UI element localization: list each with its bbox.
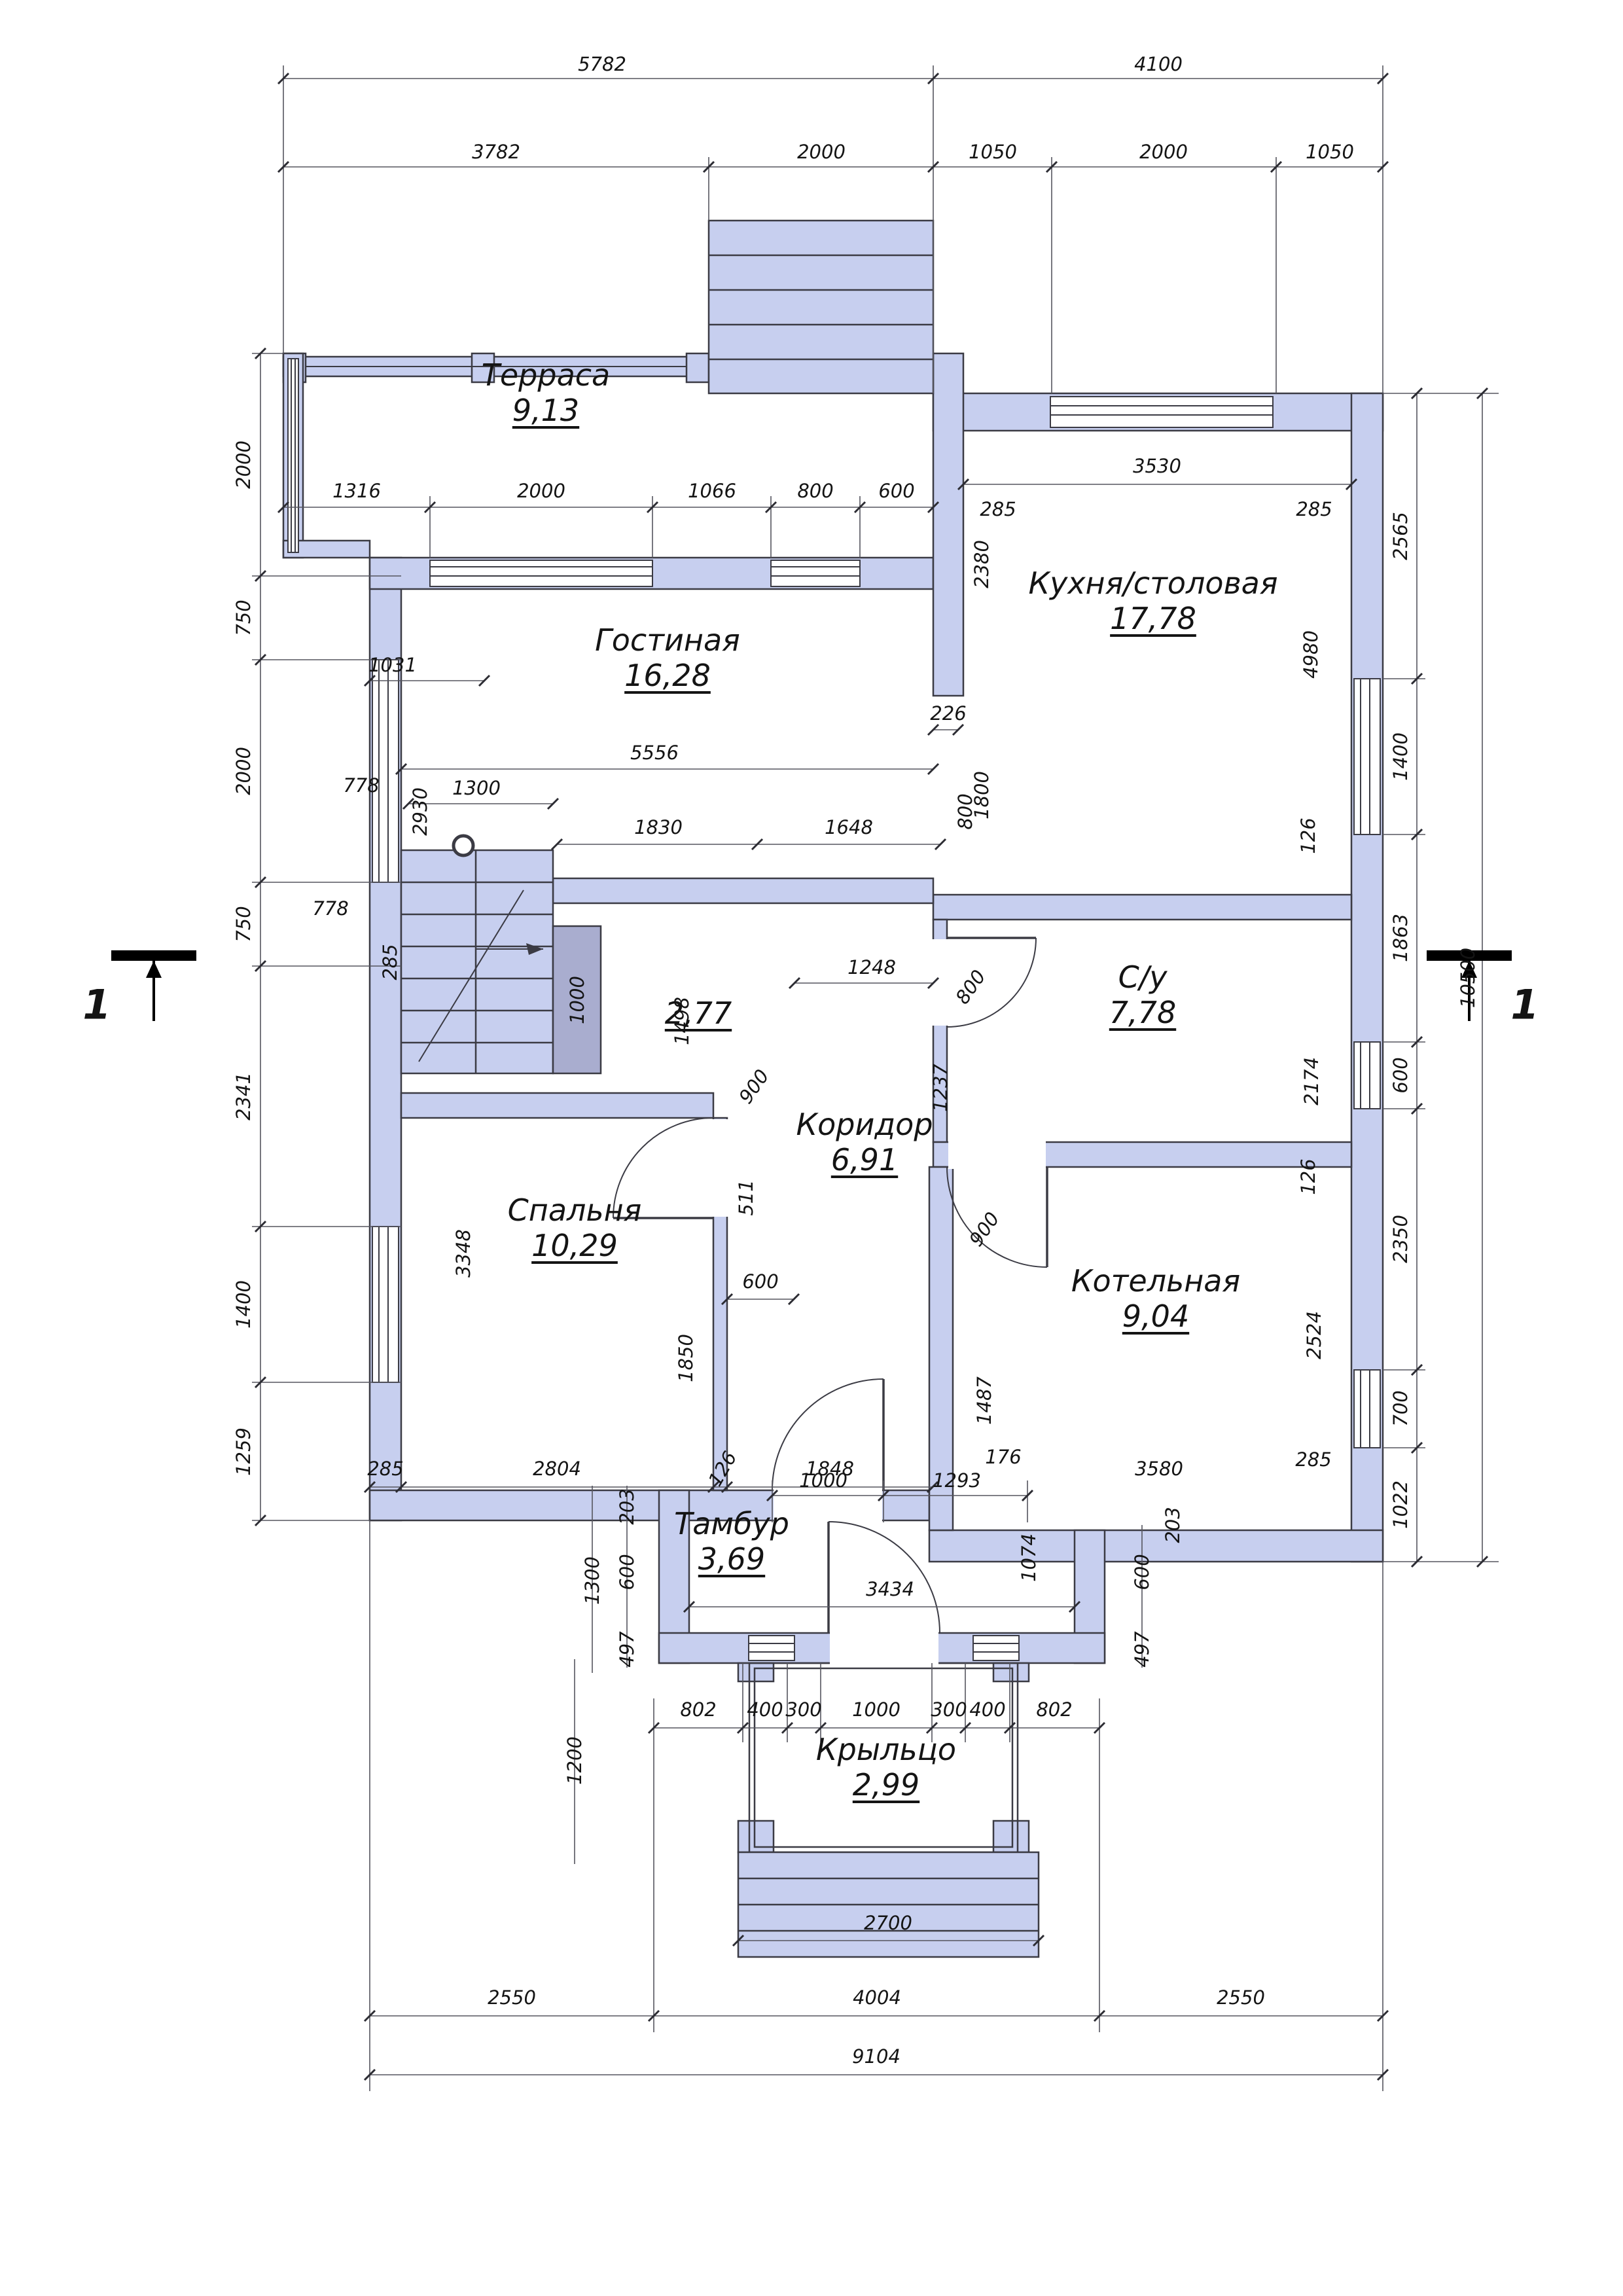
porch-post xyxy=(993,1663,1029,1681)
room-name: Крыльцо xyxy=(816,1732,956,1767)
room-area: 9,13 xyxy=(482,393,610,428)
dimension-label: 800 xyxy=(954,793,976,829)
dimension-label: 126 xyxy=(1297,817,1319,853)
dimension-label: 2174 xyxy=(1300,1057,1323,1105)
dimension-label: 285 xyxy=(980,498,1016,520)
dimension-label: 1000 xyxy=(852,1698,901,1721)
dimension-label: 778 xyxy=(312,897,348,920)
dimension-label: 1000 xyxy=(566,976,588,1024)
dimension-label: 600 xyxy=(616,1554,638,1590)
room-name: Котельная xyxy=(1071,1263,1240,1299)
room-area: 7,78 xyxy=(1109,995,1176,1030)
dimension-label: 750 xyxy=(232,600,255,636)
room-name: С/у xyxy=(1109,960,1176,995)
room-area: 3,69 xyxy=(674,1541,789,1577)
dimension-label: 497 xyxy=(1131,1631,1153,1667)
dimension-label: 300 xyxy=(785,1698,821,1721)
dimension-label: 600 xyxy=(1389,1057,1412,1093)
dimension-label: 2341 xyxy=(232,1072,255,1121)
dimension-label: 176 xyxy=(985,1446,1021,1468)
dimension-label: 5782 xyxy=(578,53,626,75)
dimension-label: 400 xyxy=(747,1698,783,1721)
dimension-label: 285 xyxy=(379,944,401,980)
dimension-label: 700 xyxy=(1389,1390,1412,1426)
dimension-label: 2550 xyxy=(488,1986,536,2009)
dimension-label: 2524 xyxy=(1303,1311,1325,1359)
dimension-label: 800 xyxy=(797,480,833,502)
dimension-label: 1293 xyxy=(933,1469,981,1492)
dimension-label: 802 xyxy=(1036,1698,1072,1721)
dimension-label: 285 xyxy=(1296,498,1332,520)
dimension-label: 511 xyxy=(735,1179,757,1215)
room-label: Котельная 9,04 xyxy=(1071,1263,1240,1334)
terrace-steps xyxy=(709,221,933,393)
dimension-label: 2350 xyxy=(1389,1215,1412,1263)
dimension-label: 3434 xyxy=(866,1578,914,1600)
room-name: Терраса xyxy=(482,357,610,393)
dimension-label: 2804 xyxy=(533,1458,581,1480)
room-label: Спальня 10,29 xyxy=(508,1193,642,1263)
dimension-label: 802 xyxy=(680,1698,716,1721)
dimension-label: 2380 xyxy=(971,540,993,588)
dimension-label: 285 xyxy=(1295,1448,1331,1471)
dimension-label: 1259 xyxy=(232,1427,255,1476)
dimension-label: 4100 xyxy=(1134,53,1183,75)
staircase xyxy=(401,836,601,1073)
dimension-label: 600 xyxy=(742,1270,778,1293)
room-label: Крыльцо 2,99 xyxy=(816,1732,956,1803)
dimension-label: 1850 xyxy=(675,1334,697,1382)
room-area: 10,29 xyxy=(508,1228,642,1263)
dimension-label: 600 xyxy=(878,480,914,502)
dimension-label: 778 xyxy=(343,774,379,797)
section-number: 1 xyxy=(82,981,111,1029)
room-area: 2,99 xyxy=(816,1767,956,1803)
room-name: Коридор xyxy=(796,1107,933,1142)
room-label: Терраса 9,13 xyxy=(482,357,610,428)
dimension-label: 226 xyxy=(930,702,966,725)
dimension-label: 1830 xyxy=(634,816,683,838)
dimension-label: 3580 xyxy=(1135,1458,1183,1480)
dimension-label: 2700 xyxy=(864,1912,912,1934)
dimension-label: 750 xyxy=(232,906,255,942)
room-name: Спальня xyxy=(508,1193,642,1228)
section-number: 1 xyxy=(1510,981,1539,1029)
dimension-label: 4980 xyxy=(1300,630,1322,679)
dimension-label: 5556 xyxy=(630,742,679,764)
room-area: 17,78 xyxy=(1028,601,1277,636)
floor-plan-page: const data = JSON.parse(document.getElem… xyxy=(0,0,1623,2296)
room-label: С/у 7,78 xyxy=(1109,960,1176,1030)
room-name: Кухня/столовая xyxy=(1028,565,1277,601)
dimension-label: 1050 xyxy=(1306,141,1354,163)
dimension-label: 1648 xyxy=(825,816,873,838)
dimension-label: 2000 xyxy=(517,480,565,502)
dimension-label: 126 xyxy=(1297,1158,1319,1194)
wall-living-bottom xyxy=(553,878,933,903)
room-label: Кухня/столовая 17,78 xyxy=(1028,565,1277,636)
dimension-label: 285 xyxy=(367,1458,403,1480)
section-mark-left xyxy=(111,950,196,1021)
wall-bedroom-top xyxy=(401,1093,713,1118)
room-area: 16,28 xyxy=(595,658,740,693)
dimension-label: 600 xyxy=(1131,1554,1153,1590)
dimension-label: 1498 xyxy=(671,997,693,1045)
wall-bottom-right-outer xyxy=(929,1530,1383,1562)
wall-wc-top xyxy=(933,895,1351,920)
dimension-label: 203 xyxy=(616,1488,638,1524)
stair-column xyxy=(454,836,473,855)
dimension-label: 10500 xyxy=(1457,948,1479,1008)
dimension-label: 2000 xyxy=(1139,141,1188,163)
dimension-label: 1300 xyxy=(581,1556,603,1605)
dimension-label: 2000 xyxy=(232,440,255,489)
porch-steps xyxy=(738,1852,1039,1957)
dimension-label: 1050 xyxy=(969,141,1017,163)
room-label: Гостиная 16,28 xyxy=(595,622,740,693)
dimension-label: 3782 xyxy=(472,141,520,163)
room-name: Гостиная xyxy=(595,622,740,658)
room-label: Коридор 6,91 xyxy=(796,1107,933,1177)
dimension-label: 497 xyxy=(616,1631,638,1667)
room-area: 9,04 xyxy=(1071,1299,1240,1334)
room-label: Тамбур 3,69 xyxy=(674,1506,789,1577)
terrace-post xyxy=(687,353,709,382)
porch-post xyxy=(738,1663,774,1681)
dimension-label: 1237 xyxy=(929,1064,952,1112)
dimension-label: 1074 xyxy=(1018,1534,1040,1582)
dimension-label: 1022 xyxy=(1389,1480,1412,1529)
dimension-label: 2565 xyxy=(1389,512,1412,560)
room-area: 6,91 xyxy=(796,1142,933,1177)
dimension-label: 2000 xyxy=(232,747,255,795)
dimension-label: 2930 xyxy=(409,787,431,836)
dimension-label: 4004 xyxy=(853,1986,901,2009)
dimension-label: 3530 xyxy=(1133,455,1181,477)
dimension-label: 1248 xyxy=(847,956,896,978)
dimension-label: 9104 xyxy=(852,2045,901,2068)
room-name: Тамбур xyxy=(674,1506,789,1541)
dimension-label: 1000 xyxy=(799,1469,847,1492)
dimension-label: 1300 xyxy=(452,777,501,799)
dimension-label: 3348 xyxy=(452,1229,474,1278)
dimension-label: 203 xyxy=(1162,1507,1184,1543)
dimension-label: 400 xyxy=(969,1698,1005,1721)
dimension-label: 1863 xyxy=(1389,914,1412,962)
dimension-label: 1400 xyxy=(232,1280,255,1329)
wall-kitchen-left xyxy=(933,353,963,696)
dimension-label: 2550 xyxy=(1217,1986,1265,2009)
dimension-label: 2000 xyxy=(797,141,846,163)
dimension-label: 300 xyxy=(931,1698,967,1721)
dimension-label: 1200 xyxy=(563,1736,586,1785)
dimension-label: 1400 xyxy=(1389,732,1412,781)
dimension-label: 1487 xyxy=(973,1376,995,1425)
dimension-label: 1316 xyxy=(332,480,381,502)
dimension-label: 1066 xyxy=(688,480,736,502)
dimension-label: 1031 xyxy=(368,654,417,676)
